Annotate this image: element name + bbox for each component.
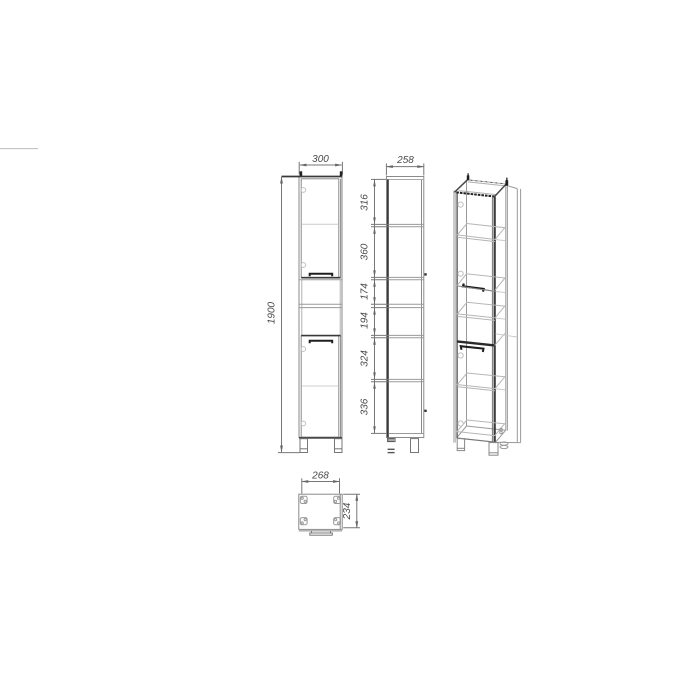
svg-text:194: 194 [360, 312, 371, 329]
svg-text:174: 174 [360, 283, 371, 300]
svg-text:324: 324 [360, 350, 371, 367]
svg-text:268: 268 [311, 471, 329, 482]
svg-text:360: 360 [360, 243, 371, 260]
svg-text:258: 258 [396, 155, 414, 166]
svg-text:316: 316 [360, 194, 371, 211]
svg-text:336: 336 [360, 398, 371, 415]
svg-text:1900: 1900 [267, 301, 278, 324]
svg-text:300: 300 [312, 154, 329, 165]
svg-text:234: 234 [342, 502, 353, 520]
